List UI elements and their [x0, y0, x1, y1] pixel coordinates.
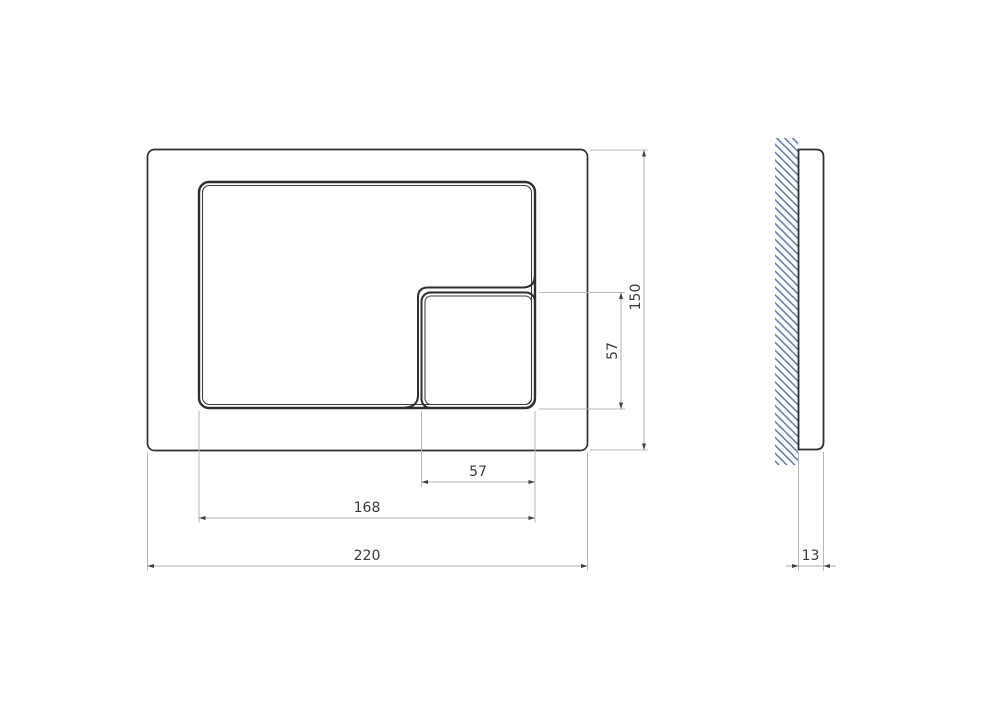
side-profile-outline	[799, 150, 824, 450]
arrowhead	[642, 444, 646, 451]
technical-drawing-page: 150 57 57 168	[0, 0, 1000, 707]
arrowhead	[199, 516, 206, 520]
plate-outline	[148, 150, 588, 451]
dim-label-57-vertical: 57	[605, 342, 621, 360]
arrowhead	[529, 480, 536, 484]
dim-label-220: 220	[354, 548, 381, 564]
arrowhead	[792, 564, 799, 568]
arrowhead	[619, 403, 623, 410]
arrowhead	[422, 480, 429, 484]
dim-label-13: 13	[802, 548, 820, 564]
dim-label-57-horizontal: 57	[469, 464, 487, 480]
dim-overall-height: 150	[590, 150, 648, 450]
dim-label-168: 168	[354, 500, 381, 516]
front-view	[148, 150, 588, 451]
arrowhead	[148, 564, 155, 568]
dim-plate-thickness: 13	[786, 452, 836, 571]
wall-hatch	[775, 138, 798, 465]
side-view	[775, 138, 824, 465]
arrowhead	[824, 564, 831, 568]
technical-drawing: 150 57 57 168	[0, 0, 1000, 707]
arrowhead	[642, 150, 646, 157]
arrowhead	[581, 564, 588, 568]
dim-label-150: 150	[628, 284, 644, 311]
arrowhead	[529, 516, 536, 520]
arrowhead	[619, 293, 623, 300]
